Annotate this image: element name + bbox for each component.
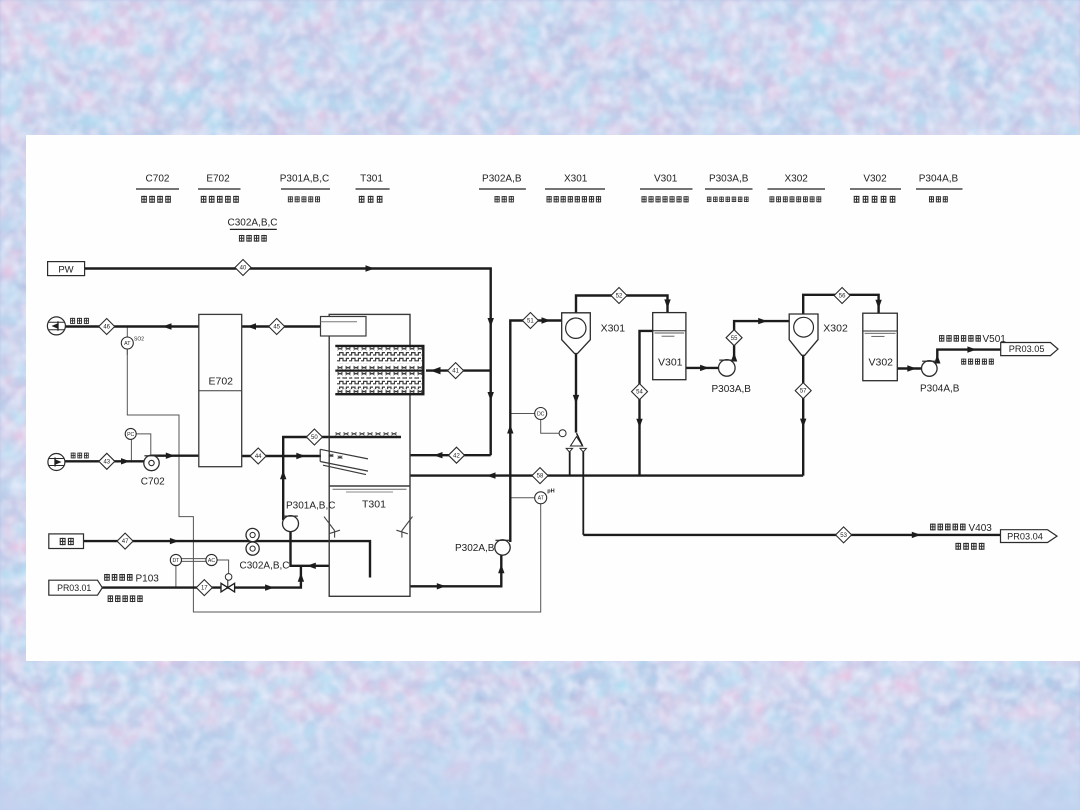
- svg-text:AT: AT: [538, 496, 545, 502]
- svg-text:PC: PC: [127, 432, 134, 438]
- svg-text:V301: V301: [654, 174, 678, 185]
- svg-text:17: 17: [201, 586, 208, 592]
- svg-text:42: 42: [453, 453, 460, 459]
- svg-text:AT: AT: [124, 341, 131, 347]
- svg-text:PW: PW: [58, 264, 73, 275]
- svg-text:E702: E702: [209, 375, 234, 387]
- svg-text:P302A,B: P302A,B: [455, 543, 495, 554]
- svg-text:47: 47: [122, 539, 129, 545]
- svg-text:SO2: SO2: [134, 337, 144, 343]
- svg-text:58: 58: [537, 474, 544, 480]
- svg-text:DT: DT: [172, 558, 180, 564]
- svg-text:PR03.04: PR03.04: [1007, 531, 1043, 541]
- svg-text:46: 46: [103, 325, 110, 331]
- svg-text:41: 41: [452, 369, 459, 375]
- svg-text:P103: P103: [136, 573, 160, 584]
- svg-text:44: 44: [255, 454, 262, 460]
- svg-text:V302: V302: [869, 356, 894, 368]
- svg-text:pH: pH: [547, 488, 554, 494]
- svg-text:DC: DC: [537, 411, 545, 417]
- svg-text:52: 52: [616, 294, 623, 300]
- svg-text:PR03.05: PR03.05: [1009, 344, 1045, 354]
- svg-text:C302A,B,C: C302A,B,C: [240, 560, 290, 571]
- svg-text:V501: V501: [983, 334, 1007, 345]
- svg-text:P303A,B: P303A,B: [712, 384, 752, 395]
- svg-text:40: 40: [240, 266, 247, 272]
- svg-text:54: 54: [636, 390, 643, 396]
- svg-text:V403: V403: [969, 523, 993, 534]
- svg-text:C702: C702: [141, 477, 165, 488]
- svg-text:P304A,B: P304A,B: [919, 174, 959, 185]
- svg-text:V301: V301: [658, 356, 683, 368]
- svg-text:P303A,B: P303A,B: [709, 174, 749, 185]
- svg-text:X302: X302: [823, 322, 848, 334]
- svg-text:43: 43: [103, 459, 110, 465]
- svg-text:X301: X301: [601, 322, 626, 334]
- svg-text:T301: T301: [360, 174, 383, 185]
- svg-text:P301A,B,C: P301A,B,C: [286, 501, 335, 512]
- svg-text:V302: V302: [863, 174, 887, 185]
- svg-text:C702: C702: [146, 174, 170, 185]
- svg-text:45: 45: [273, 325, 280, 331]
- svg-text:53: 53: [840, 533, 847, 539]
- svg-text:AC: AC: [208, 558, 215, 564]
- svg-text:P304A,B: P304A,B: [920, 384, 960, 395]
- svg-text:P301A,B,C: P301A,B,C: [280, 174, 329, 185]
- svg-text:C302A,B,C: C302A,B,C: [227, 217, 277, 228]
- svg-text:51: 51: [527, 319, 534, 325]
- svg-text:57: 57: [800, 389, 807, 395]
- svg-text:E702: E702: [206, 174, 230, 185]
- svg-text:56: 56: [839, 294, 846, 300]
- svg-text:X301: X301: [564, 174, 588, 185]
- svg-text:55: 55: [731, 336, 738, 342]
- svg-text:P302A,B: P302A,B: [482, 174, 522, 185]
- svg-text:T301: T301: [362, 499, 386, 511]
- svg-text:50: 50: [311, 435, 318, 441]
- svg-text:PR03.01: PR03.01: [57, 583, 91, 593]
- svg-text:X302: X302: [785, 174, 809, 185]
